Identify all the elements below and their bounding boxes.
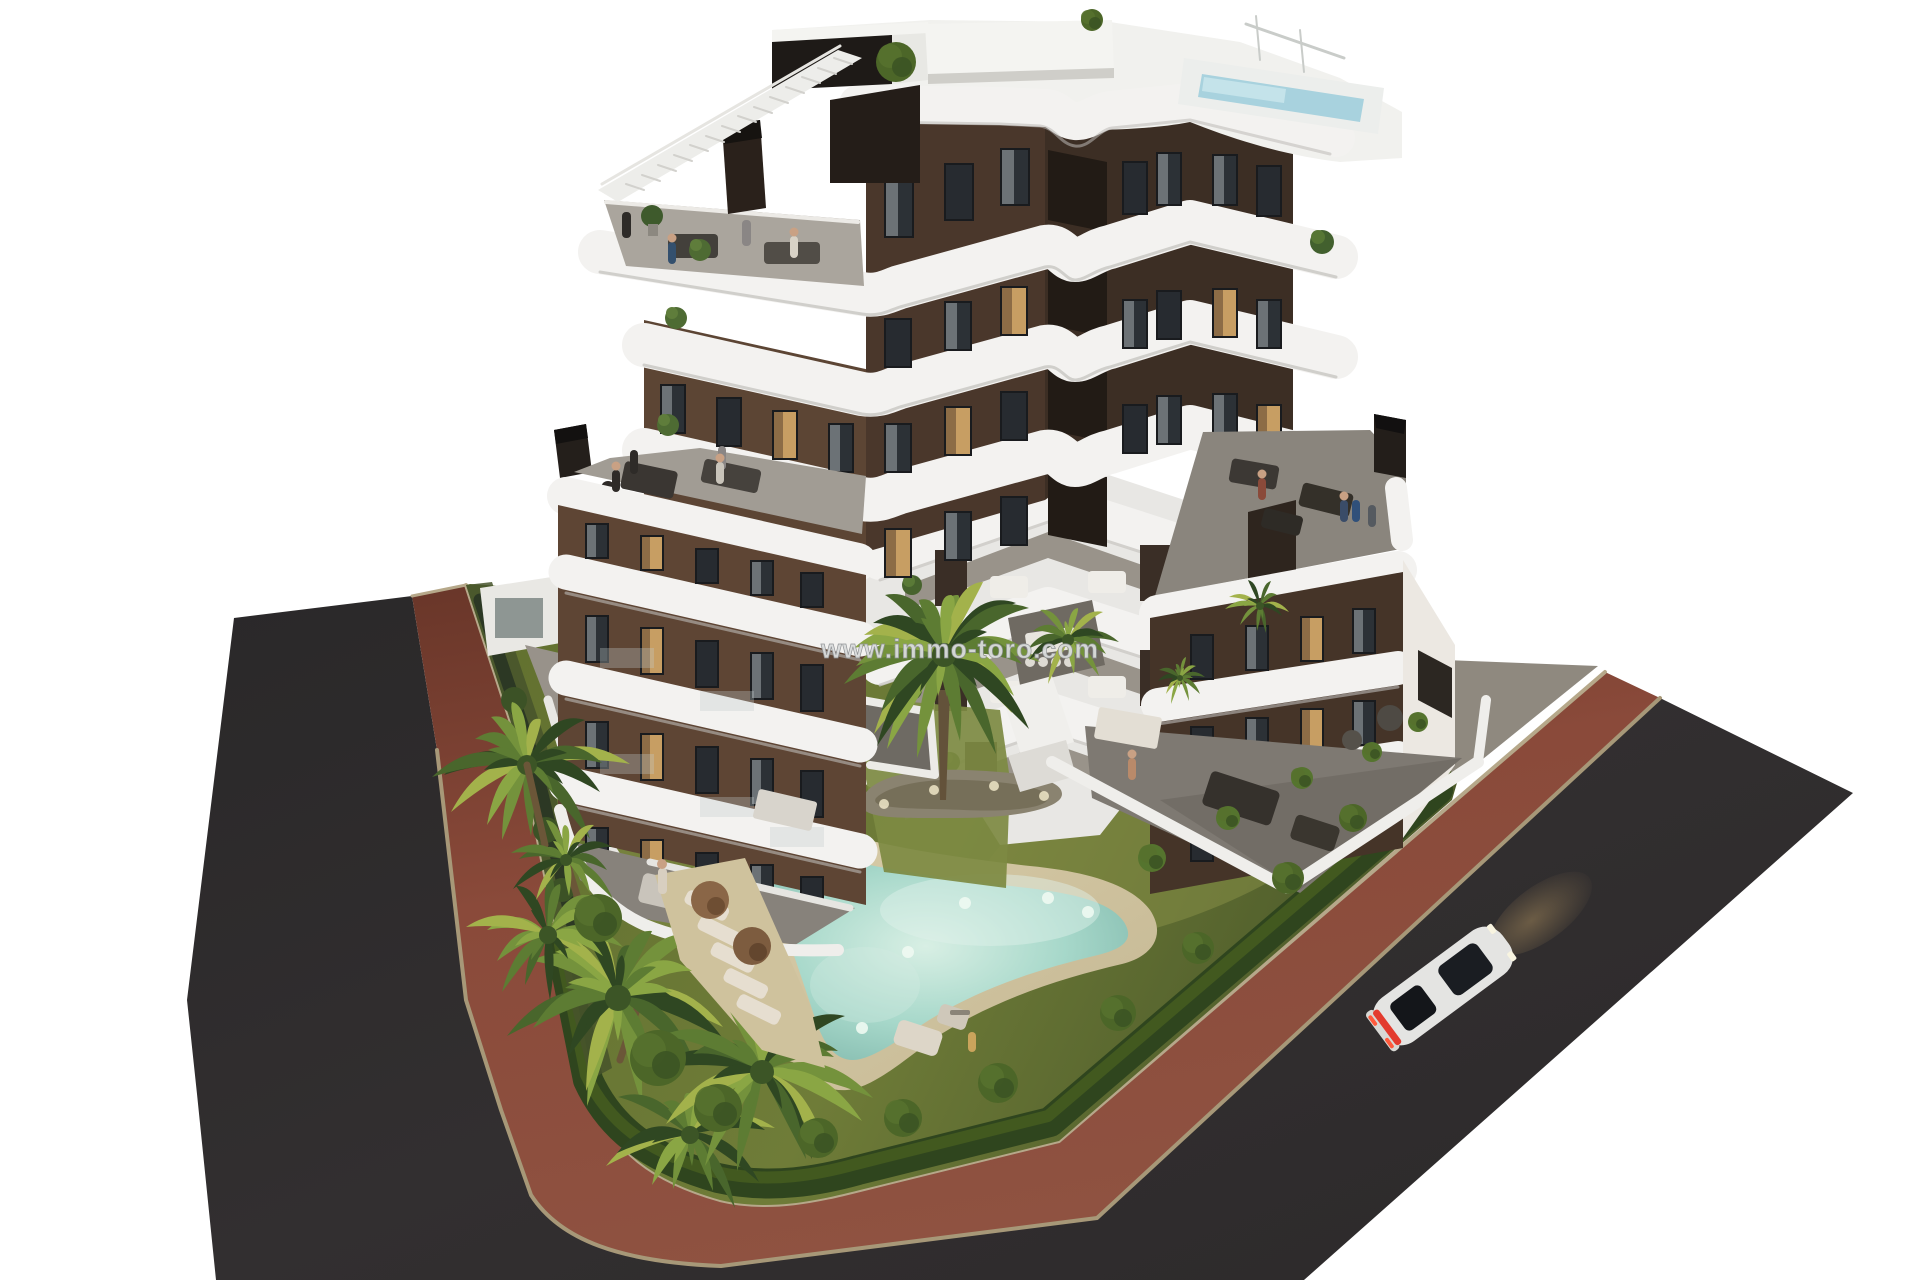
svg-text:www.immo-toro.com: www.immo-toro.com — [820, 634, 1099, 664]
